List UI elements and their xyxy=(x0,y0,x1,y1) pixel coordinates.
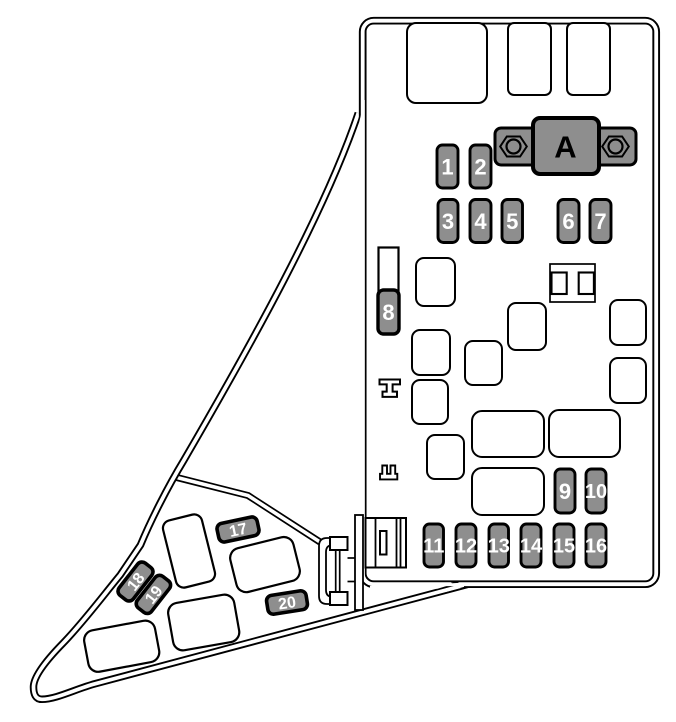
svg-text:20: 20 xyxy=(277,594,297,614)
svg-text:13: 13 xyxy=(488,536,510,558)
svg-text:14: 14 xyxy=(520,536,543,558)
svg-text:6: 6 xyxy=(562,209,574,234)
svg-text:2: 2 xyxy=(474,154,486,179)
svg-text:A: A xyxy=(554,130,576,165)
svg-text:10: 10 xyxy=(585,481,607,503)
svg-text:11: 11 xyxy=(423,536,444,558)
svg-text:4: 4 xyxy=(474,209,487,234)
svg-text:12: 12 xyxy=(455,536,477,558)
svg-text:17: 17 xyxy=(228,521,249,541)
svg-text:15: 15 xyxy=(553,536,575,558)
svg-text:7: 7 xyxy=(594,209,606,234)
svg-text:9: 9 xyxy=(559,479,571,504)
svg-text:16: 16 xyxy=(585,536,607,558)
svg-text:8: 8 xyxy=(382,300,394,325)
svg-text:1: 1 xyxy=(441,154,453,179)
svg-text:3: 3 xyxy=(442,209,454,234)
svg-text:5: 5 xyxy=(506,209,518,234)
